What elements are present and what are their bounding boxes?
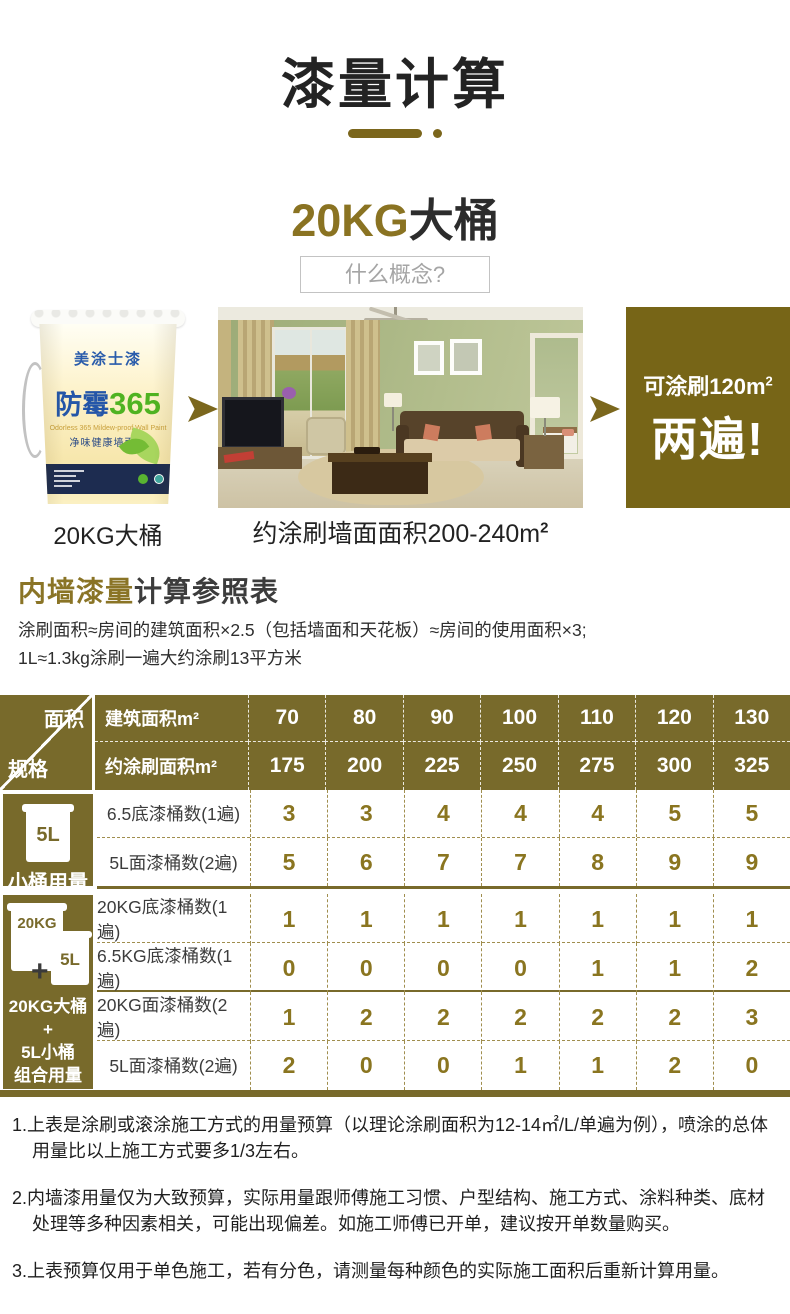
- coverage-result-box: 可涂刷120m2 两遍!: [626, 307, 790, 508]
- table-cell: 2: [636, 1041, 713, 1090]
- row-label: 20KG面漆桶数(2遍): [97, 992, 250, 1042]
- header-cell: 100: [480, 695, 557, 742]
- table-cell: 1: [559, 894, 636, 944]
- footnotes: 1.上表是涂刷或滚涂施工方式的用量预算（以理论涂刷面积为12-14㎡/L/单遍为…: [12, 1112, 780, 1305]
- bucket-footer-band: [38, 464, 178, 494]
- table-cell: 3: [713, 992, 790, 1042]
- throw-pillow: [423, 424, 440, 441]
- fruit-tray: [354, 447, 380, 454]
- throw-pillow: [475, 424, 492, 441]
- table-lamp: [530, 397, 560, 418]
- subtitle-rest: 大桶: [409, 195, 499, 246]
- table-corner-cell: 面积 规格: [0, 695, 95, 790]
- paint-usage-table: 面积 规格 建筑面积m² 70 80 90 100 110 120 130 约涂…: [0, 695, 790, 1097]
- coverage-area-text: 可涂刷120m2: [626, 369, 790, 401]
- table-cell: 2: [636, 992, 713, 1042]
- coffee-table: [332, 462, 428, 494]
- header-cell: 175: [248, 742, 325, 790]
- row-label: 20KG底漆桶数(1遍): [97, 894, 250, 944]
- header-cell: 325: [713, 742, 790, 790]
- table-cell: 0: [404, 943, 481, 993]
- divider-bar-icon: [348, 129, 422, 138]
- product-detail-page: 漆量计算 20KG大桶 什么概念? 美涂士漆 防霉365 Odorless 36…: [0, 0, 790, 1314]
- header-cell: 90: [403, 695, 480, 742]
- flower-vase: [282, 387, 296, 399]
- table-cell: 6: [327, 838, 404, 886]
- table-cell: 1: [559, 1041, 636, 1090]
- table-section-heading: 内墙漆量计算参照表: [18, 570, 279, 610]
- table-cell: 1: [481, 894, 558, 944]
- room-photo: [218, 307, 583, 508]
- table-cell: 3: [327, 790, 404, 837]
- header-cell: 275: [558, 742, 635, 790]
- table-cell: 0: [327, 943, 404, 993]
- table-cell: 3: [250, 790, 327, 837]
- table-row: 20KG底漆桶数(1遍) 1 1 1 1 1 1 1: [97, 894, 790, 943]
- table-row: 5L面漆桶数(2遍) 5 6 7 7 8 9 9: [97, 838, 790, 886]
- table-cell: 1: [559, 943, 636, 993]
- table-cell: 2: [327, 992, 404, 1042]
- table-row: 5L面漆桶数(2遍) 2 0 0 1 1 2 0: [97, 1041, 790, 1090]
- table-cell: 1: [713, 894, 790, 944]
- table-cell: 1: [481, 1041, 558, 1090]
- table-cell: 1: [327, 894, 404, 944]
- table-cell: 9: [713, 838, 790, 886]
- table-cell: 5: [250, 838, 327, 886]
- header-cell: 120: [635, 695, 712, 742]
- header-cell: 250: [480, 742, 557, 790]
- corner-spec-label: 规格: [8, 753, 48, 782]
- table-cell: 0: [327, 1041, 404, 1090]
- footnote: 3.上表预算仅用于单色施工，若有分色，请测量每种颜色的实际施工面积后重新计算用量…: [12, 1258, 780, 1284]
- table-bottom-bar: [0, 1090, 790, 1097]
- header-cell: 70: [248, 695, 325, 742]
- table-cell: 0: [250, 943, 327, 993]
- leaf-icon: [125, 427, 166, 464]
- header-cell: 300: [635, 742, 712, 790]
- table-header: 面积 规格 建筑面积m² 70 80 90 100 110 120 130 约涂…: [0, 695, 790, 790]
- table-cell: 9: [636, 838, 713, 886]
- header-cell: 200: [325, 742, 402, 790]
- header-cell: 80: [325, 695, 402, 742]
- group-rows: 20KG底漆桶数(1遍) 1 1 1 1 1 1 1 6.5KG底漆桶数(1遍)…: [97, 894, 790, 1090]
- group-caption: 20KG大桶 + 5L小桶 组合用量: [3, 995, 93, 1087]
- table-cell: 1: [250, 992, 327, 1042]
- header-cell: 225: [403, 742, 480, 790]
- table-cell: 5: [713, 790, 790, 837]
- row-label: 5L面漆桶数(2遍): [97, 1041, 250, 1090]
- wicker-chair: [306, 417, 346, 455]
- table-cell: 0: [481, 943, 558, 993]
- table-cell: 7: [404, 838, 481, 886]
- coffee-table: [328, 453, 432, 462]
- room-caption: 约涂刷墙面面积200-240m2: [218, 514, 583, 550]
- bucket-body: 美涂士漆 防霉365 Odorless 365 Mildew-proof Wal…: [38, 324, 178, 504]
- lamp-pole: [392, 407, 394, 431]
- table-row: 20KG面漆桶数(2遍) 1 2 2 2 2 2 3: [97, 992, 790, 1041]
- row-label: 6.5底漆桶数(1遍): [97, 790, 250, 837]
- series-name: 防霉365: [38, 383, 178, 422]
- section-subtitle: 20KG大桶: [0, 184, 790, 249]
- bucket-5l-icon: 5L: [26, 808, 70, 862]
- table-row: 6.5KG底漆桶数(1遍) 0 0 0 0 1 1 2: [97, 943, 790, 992]
- bucket-5l-icon: 5L: [51, 935, 89, 985]
- leaf-icon: [119, 432, 150, 462]
- lamp-pole: [544, 418, 546, 436]
- group-side-cell: 5L 小桶用量: [3, 794, 93, 886]
- eco-badge-icon: [138, 474, 148, 484]
- header-cell: 110: [558, 695, 635, 742]
- table-cell: 0: [713, 1041, 790, 1090]
- footnote: 1.上表是涂刷或滚涂施工方式的用量预算（以理论涂刷面积为12-14㎡/L/单遍为…: [12, 1112, 780, 1164]
- bucket-caption: 20KG大桶: [26, 516, 190, 551]
- table-cell: 4: [404, 790, 481, 837]
- table-cell: 8: [559, 838, 636, 886]
- header-row-label: 约涂刷面积m²: [95, 742, 248, 790]
- curtain: [346, 320, 380, 461]
- table-cell: 7: [481, 838, 558, 886]
- divider-dot-icon: [433, 129, 442, 138]
- tv: [222, 397, 284, 449]
- table-cell: 1: [250, 894, 327, 944]
- series-subtitle-en: Odorless 365 Mildew-proof Wall Paint: [38, 425, 178, 432]
- table-cell: 2: [713, 943, 790, 993]
- group-side-cell: 20KG 5L + 20KG大桶 + 5L小桶 组合用量: [3, 895, 93, 1089]
- header-cell: 130: [713, 695, 790, 742]
- table-cell: 4: [559, 790, 636, 837]
- leaf-decoration-icon: [122, 426, 162, 460]
- paint-bucket-photo: 美涂士漆 防霉365 Odorless 365 Mildew-proof Wal…: [26, 308, 190, 508]
- cert-badge-icon: [154, 474, 164, 484]
- coverage-coats-text: 两遍!: [626, 403, 790, 469]
- table-section-description: 涂刷面积≈房间的建筑面积×2.5（包括墙面和天花板）≈房间的使用面积×3; 1L…: [18, 616, 778, 672]
- arrow-right-icon: [188, 396, 218, 422]
- group-caption: 小桶用量: [3, 866, 93, 895]
- description-line: 1L≈1.3kg涂刷一遍大约涂刷13平方米: [18, 644, 778, 672]
- group-rows: 6.5底漆桶数(1遍) 3 3 4 4 4 5 5 5L面漆桶数(2遍) 5 6…: [97, 790, 790, 889]
- row-label: 6.5KG底漆桶数(1遍): [97, 943, 250, 993]
- wall-frame: [414, 341, 444, 375]
- corner-area-label: 面积: [44, 703, 84, 732]
- table-cell: 1: [404, 894, 481, 944]
- side-table: [524, 435, 564, 469]
- table-cell: 2: [404, 992, 481, 1042]
- subtitle-highlight: 20KG: [291, 195, 409, 246]
- brand-text: 美涂士漆: [38, 348, 178, 369]
- table-cell: 2: [250, 1041, 327, 1090]
- footnote: 2.内墙漆用量仅为大致预算，实际用量跟师傅施工习惯、户型结构、施工方式、涂料种类…: [12, 1185, 780, 1237]
- table-cell: 2: [481, 992, 558, 1042]
- floor-lamp: [384, 393, 402, 407]
- plus-icon: +: [31, 955, 49, 989]
- table-cell: 2: [559, 992, 636, 1042]
- row-label: 5L面漆桶数(2遍): [97, 838, 250, 886]
- table-row: 6.5底漆桶数(1遍) 3 3 4 4 4 5 5: [97, 790, 790, 838]
- table-cell: 4: [481, 790, 558, 837]
- table-cell: 0: [404, 1041, 481, 1090]
- table-cell: 1: [636, 943, 713, 993]
- series-subtitle-cn: 净味健康墙面漆: [38, 434, 178, 449]
- description-line: 涂刷面积≈房间的建筑面积×2.5（包括墙面和天花板）≈房间的使用面积×3;: [18, 616, 778, 644]
- table-group-combo: 20KG 5L + 20KG大桶 + 5L小桶 组合用量 20KG底漆桶数(1遍…: [0, 894, 790, 1090]
- arrow-right-icon: [590, 396, 620, 422]
- wall-frame: [450, 339, 482, 375]
- table-cell: 5: [636, 790, 713, 837]
- combo-buckets-icon: 20KG 5L +: [3, 903, 93, 995]
- divider: [0, 129, 790, 138]
- table-cell: 1: [636, 894, 713, 944]
- what-concept-button[interactable]: 什么概念?: [300, 256, 490, 293]
- table-group-small-bucket: 5L 小桶用量 6.5底漆桶数(1遍) 3 3 4 4 4 5 5 5L面漆桶数…: [0, 790, 790, 889]
- header-row-label: 建筑面积m²: [95, 695, 248, 742]
- band-text-lines: [54, 470, 84, 490]
- page-title: 漆量计算: [0, 40, 790, 119]
